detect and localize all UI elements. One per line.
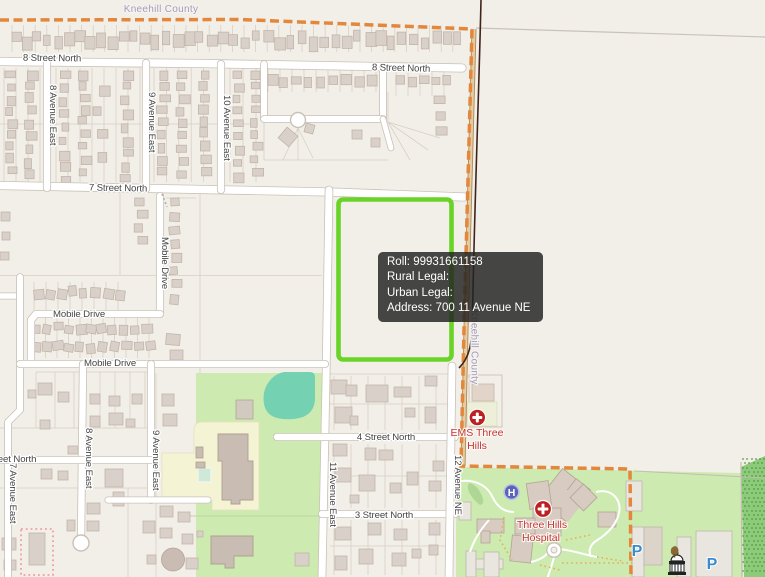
- svg-text:12 Avenue NE: 12 Avenue NE: [452, 455, 463, 515]
- svg-text:Mobile Drive: Mobile Drive: [159, 237, 170, 289]
- svg-text:8 Street North: 8 Street North: [372, 62, 431, 75]
- svg-text:3 Street North: 3 Street North: [355, 510, 413, 521]
- svg-text:Kneehill County: Kneehill County: [124, 4, 199, 15]
- svg-text:7 Street North: 7 Street North: [89, 182, 148, 194]
- svg-text:Three Hills: Three Hills: [517, 519, 567, 531]
- svg-text:9 Avenue East: 9 Avenue East: [146, 92, 157, 153]
- svg-text:7 Avenue East: 7 Avenue East: [7, 463, 18, 524]
- svg-text:EMS Three: EMS Three: [451, 427, 504, 439]
- svg-text:Mobile Drive: Mobile Drive: [84, 358, 136, 369]
- svg-text:Hospital: Hospital: [522, 532, 560, 544]
- svg-text:Mobile Drive: Mobile Drive: [53, 309, 105, 320]
- svg-text:5 Street North: 5 Street North: [0, 454, 36, 465]
- svg-text:8 Avenue East: 8 Avenue East: [47, 85, 58, 146]
- svg-text:8 Avenue East: 8 Avenue East: [83, 428, 94, 489]
- svg-text:P: P: [632, 543, 643, 560]
- svg-text:11 Avenue East: 11 Avenue East: [327, 462, 338, 527]
- svg-text:P: P: [707, 556, 718, 573]
- svg-text:4 Street North: 4 Street North: [357, 432, 415, 443]
- svg-text:10 Avenue East: 10 Avenue East: [221, 95, 232, 161]
- svg-text:Hills: Hills: [467, 440, 487, 452]
- svg-text:9 Avenue East: 9 Avenue East: [150, 430, 161, 491]
- svg-text:H: H: [508, 487, 516, 499]
- svg-text:8 Street North: 8 Street North: [23, 53, 81, 65]
